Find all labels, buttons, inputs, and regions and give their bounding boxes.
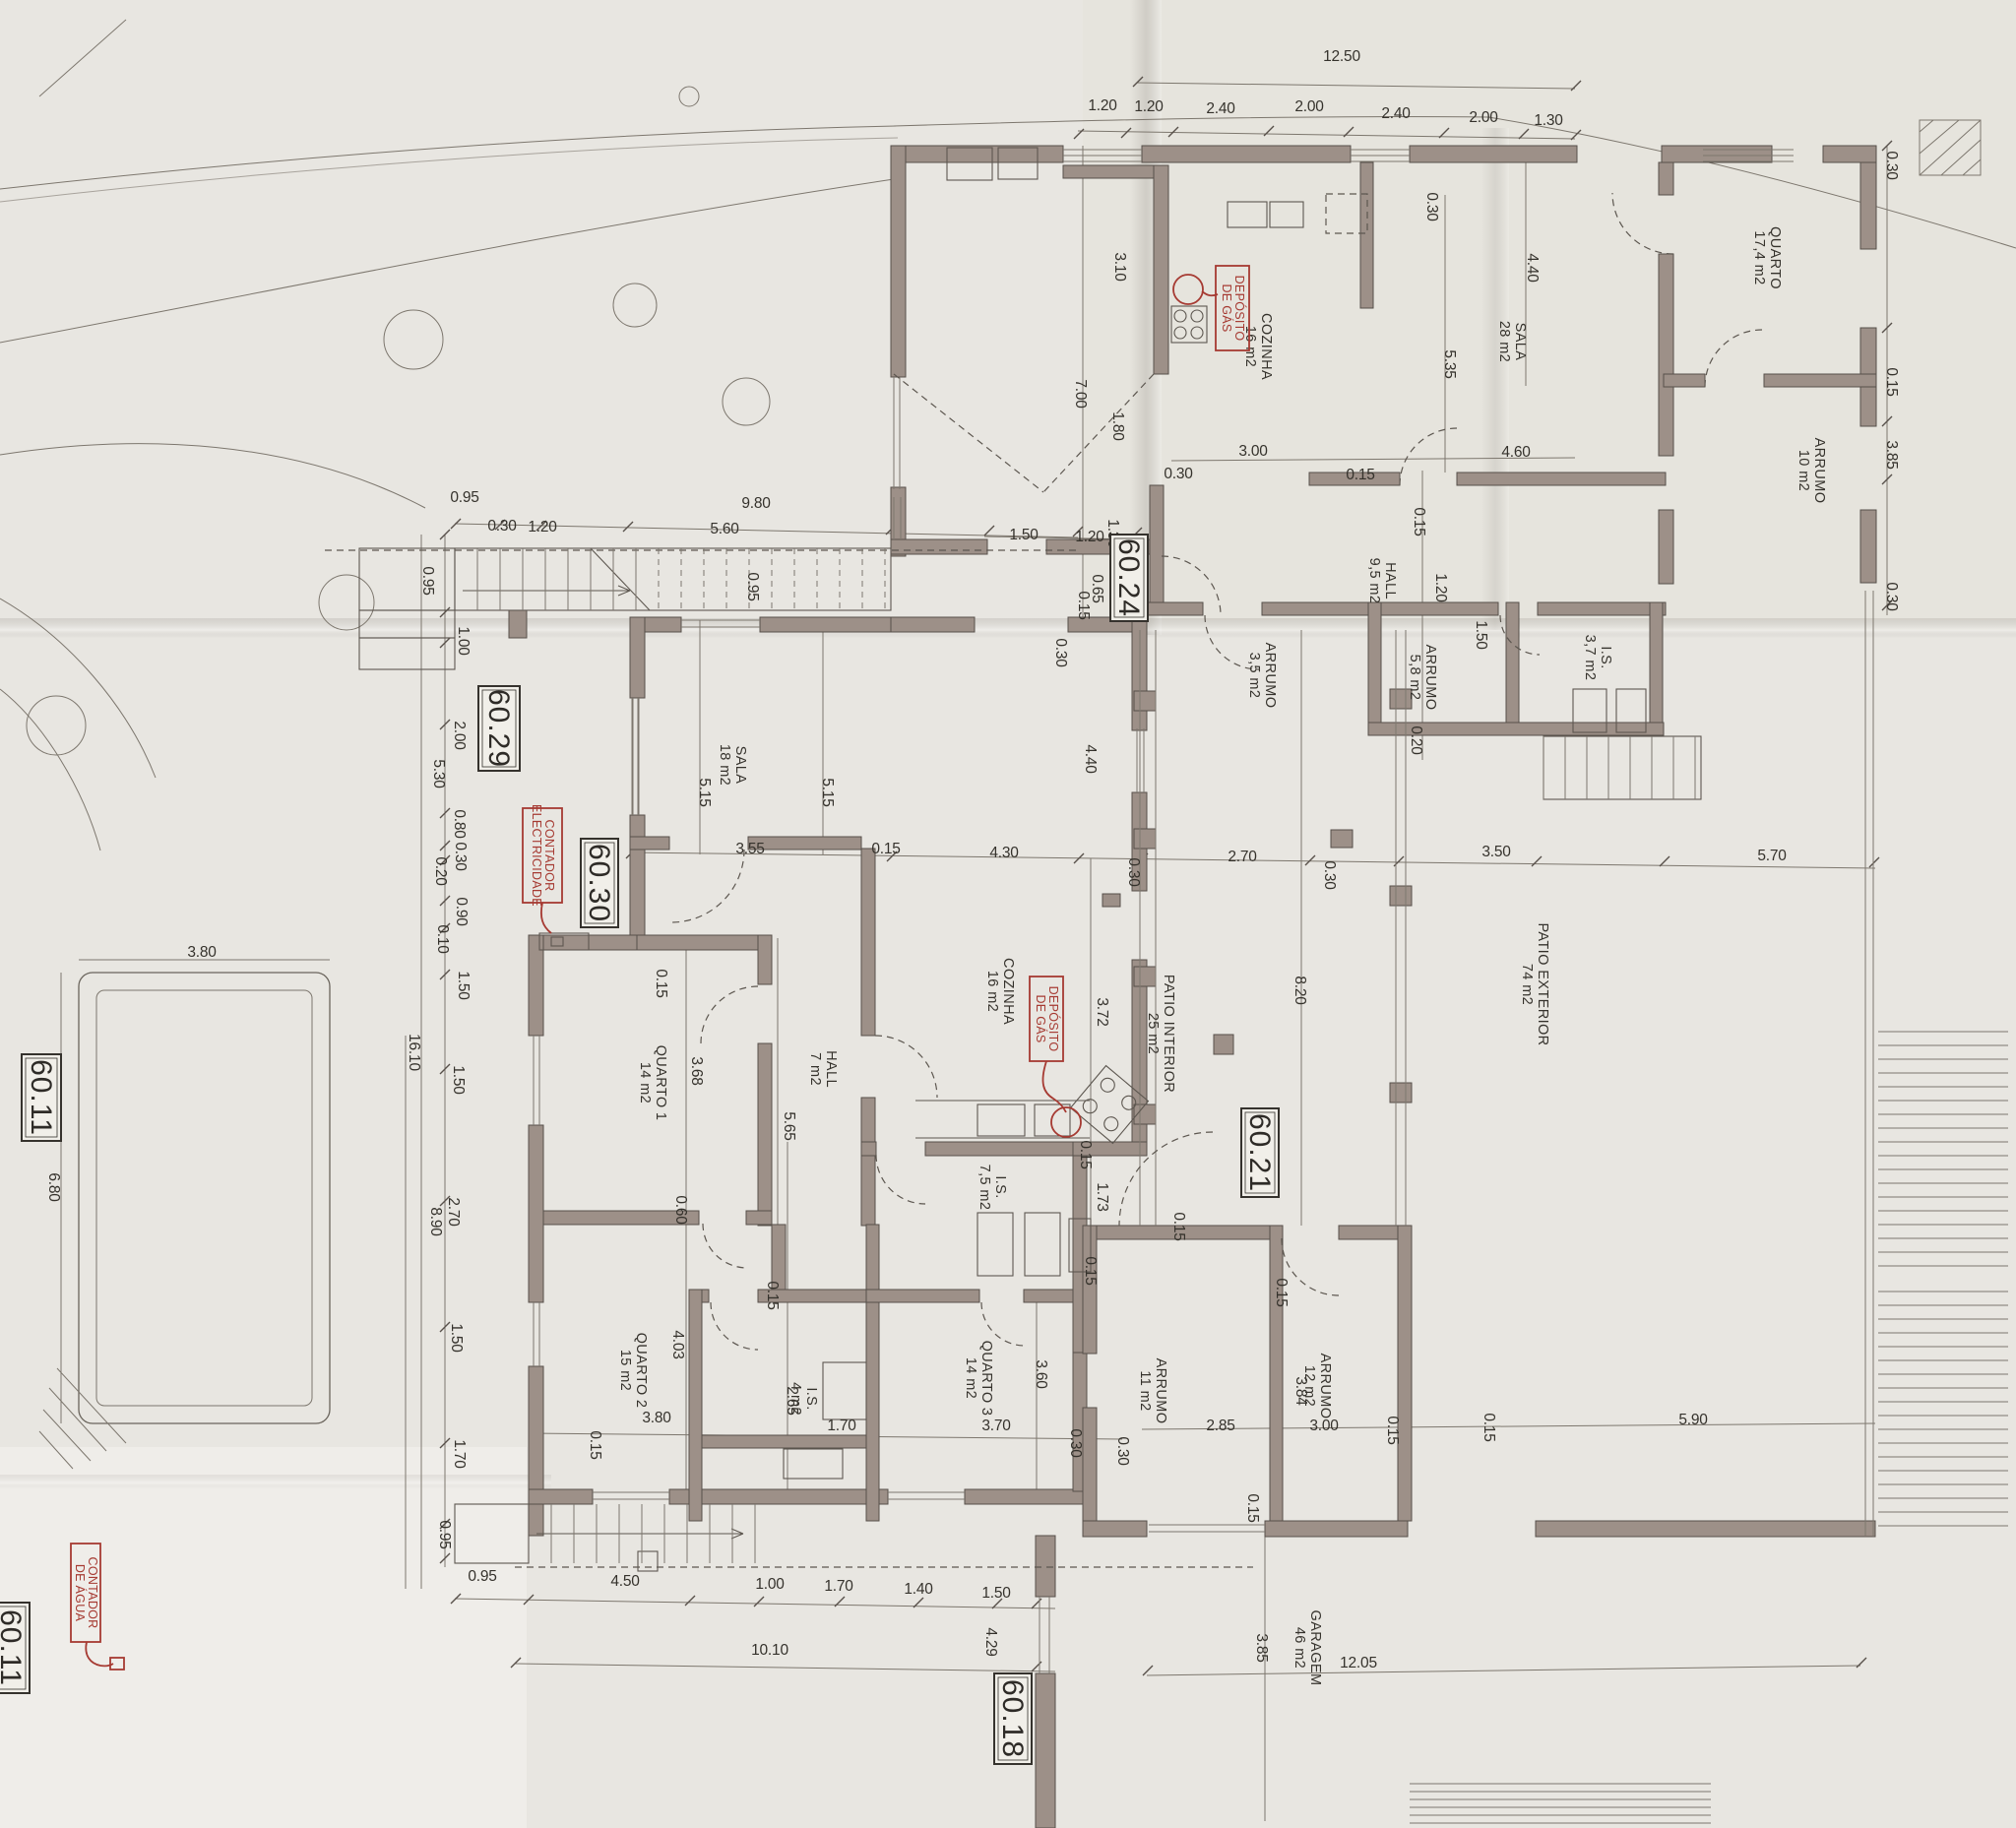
dimension-label: 8.20 — [1291, 976, 1308, 1005]
dimension-label: 1.70 — [824, 1578, 853, 1595]
dimension-label: 8.90 — [427, 1207, 444, 1236]
dimension-label: 0.30 — [1125, 857, 1142, 887]
ref-marker: 60.29 — [478, 686, 520, 771]
dimension-label: 0.15 — [587, 1430, 603, 1459]
floor-plan-drawing: COZINHA16 m2SALA28 m2QUARTO17,4 m2ARRUMO… — [0, 0, 2016, 1828]
dimension-label: 3.00 — [1309, 1418, 1339, 1434]
dimension-label: 3.00 — [1238, 443, 1268, 460]
dimension-label: 0.30 — [1052, 638, 1069, 667]
room-label: SALA18 m2 — [717, 744, 748, 786]
dimension-label: 12.05 — [1340, 1655, 1377, 1671]
dimension-label: 5.15 — [819, 778, 836, 806]
dimension-label: 5.90 — [1678, 1412, 1708, 1428]
dimension-label: 16.10 — [406, 1034, 422, 1071]
ref-marker-label: 60.24 — [1112, 538, 1145, 617]
dimension-label: 0.15 — [1480, 1413, 1497, 1441]
red-annotation-label: DEPÓSITODE GÁS — [1034, 986, 1061, 1052]
ref-marker-label: 60.21 — [1243, 1113, 1276, 1192]
dimension-label: 0.30 — [1164, 466, 1193, 482]
dimension-label: 0.15 — [871, 841, 900, 857]
dimension-label: 0.95 — [450, 489, 478, 506]
dimension-label: 2.85 — [1206, 1418, 1234, 1434]
ref-marker-label: 60.30 — [583, 844, 615, 922]
ref-marker-label: 60.18 — [996, 1679, 1029, 1758]
dimension-label: 0.60 — [672, 1195, 689, 1225]
dimension-label: 2.70 — [445, 1197, 462, 1227]
dimension-label: 3.84 — [1292, 1376, 1309, 1406]
dimension-label: 0.15 — [1077, 1140, 1094, 1168]
dimension-label: 0.15 — [1384, 1416, 1401, 1444]
dimension-label: 0.20 — [432, 856, 449, 886]
dimension-label: 0.30 — [452, 842, 469, 871]
dimension-label: 3.10 — [1111, 252, 1128, 282]
dimension-label: 3.68 — [688, 1056, 705, 1085]
dimension-label: 1.50 — [448, 1323, 465, 1353]
dimension-label: 0.95 — [419, 566, 436, 595]
ref-marker: 60.24 — [1110, 535, 1148, 621]
dimension-label: 1.30 — [1534, 112, 1563, 129]
dimension-label: 1.20 — [1088, 97, 1117, 114]
dimension-label: 9.80 — [741, 495, 771, 512]
dimension-label: 0.30 — [1883, 151, 1900, 180]
dimension-label: 3.55 — [735, 841, 764, 857]
dimension-label: 4.50 — [610, 1573, 640, 1590]
dimension-label: 0.15 — [1411, 507, 1427, 536]
dimension-label: 3.60 — [1033, 1359, 1049, 1389]
dimension-label: 0.30 — [487, 518, 517, 535]
dimension-label: 1.20 — [528, 519, 557, 536]
dimension-label: 2.65 — [784, 1386, 800, 1415]
dimension-label: 1.20 — [1134, 98, 1164, 115]
paper-crease-horizontal — [0, 618, 2016, 638]
dimension-label: 3.72 — [1094, 997, 1110, 1026]
dimension-label: 0.15 — [1170, 1212, 1187, 1240]
ref-marker: 60.30 — [581, 839, 618, 927]
room-label: HALL9,5 m2 — [1366, 558, 1398, 604]
dimension-label: 2.00 — [1469, 109, 1498, 126]
dimension-label: 5.65 — [781, 1111, 797, 1140]
room-label: SALA28 m2 — [1496, 321, 1528, 362]
room-label: QUARTO17,4 m2 — [1751, 226, 1783, 289]
dimension-label: 0.95 — [468, 1568, 496, 1585]
dimension-label: 0.80 — [451, 809, 468, 839]
scanned-floor-plan-sheet: COZINHA16 m2SALA28 m2QUARTO17,4 m2ARRUMO… — [0, 0, 2016, 1828]
dimension-label: 0.30 — [1114, 1436, 1131, 1466]
dimension-label: 7.00 — [1072, 379, 1089, 409]
dimension-label: 0.30 — [1321, 860, 1338, 890]
paper-crease-vertical-2 — [1481, 128, 1509, 630]
dimension-label: 0.30 — [1423, 192, 1440, 221]
dimension-label: 5.60 — [710, 521, 739, 537]
dimension-label: 12.50 — [1323, 48, 1360, 65]
ref-marker-label: 60.11 — [25, 1059, 57, 1136]
dimension-label: 4.40 — [1524, 253, 1541, 283]
dimension-label: 5.70 — [1757, 848, 1787, 864]
dimension-label: 2.40 — [1381, 105, 1411, 122]
ref-marker-label: 60.29 — [482, 689, 515, 768]
dimension-label: 1.50 — [981, 1585, 1011, 1602]
dimension-label: 1.20 — [1432, 573, 1449, 602]
dimension-label: 1.73 — [1094, 1182, 1110, 1211]
ref-marker: 60.21 — [1241, 1108, 1279, 1197]
dimension-label: 1.50 — [450, 1065, 467, 1095]
dimension-label: 0.10 — [434, 924, 451, 954]
dimension-label: 0.95 — [744, 572, 761, 600]
red-annotation-label: DEPÓSITODE GÁS — [1220, 276, 1247, 342]
dimension-label: 5.30 — [430, 759, 447, 788]
dimension-label: 3.80 — [187, 944, 217, 961]
dimension-label: 3.50 — [1481, 844, 1511, 860]
dimension-label: 5.35 — [1441, 349, 1458, 378]
dimension-label: 0.30 — [1067, 1428, 1084, 1458]
dimension-label: 3.85 — [1253, 1633, 1270, 1662]
red-annotation-label: CONTADORELECTRICIDADE — [530, 804, 556, 907]
dimension-label: 1.20 — [1075, 529, 1104, 545]
dimension-label: 10.10 — [751, 1642, 788, 1659]
dimension-label: 1.50 — [455, 971, 472, 1000]
dimension-label: 0.15 — [764, 1281, 781, 1309]
dimension-label: 2.40 — [1206, 100, 1235, 117]
room-label: HALL7 m2 — [807, 1050, 839, 1088]
dimension-label: 0.20 — [1408, 725, 1424, 755]
dimension-label: 4.40 — [1082, 744, 1099, 774]
paper-crease-horizontal-2 — [0, 1475, 551, 1488]
dimension-label: 0.15 — [1883, 367, 1900, 396]
ref-marker-label: 60.11 — [0, 1609, 27, 1686]
dimension-label: 3.85 — [1883, 440, 1900, 469]
dimension-label: 0.90 — [453, 897, 470, 926]
dimension-label: 1.50 — [1009, 527, 1039, 543]
dimension-label: 1.80 — [1109, 411, 1126, 441]
ref-marker: 60.18 — [994, 1673, 1032, 1764]
dimension-label: 4.30 — [989, 845, 1019, 861]
dimension-label: 0.15 — [1075, 591, 1092, 619]
dimension-label: 3.80 — [642, 1410, 671, 1426]
ref-marker: 60.11 — [0, 1603, 30, 1693]
dimension-label: 0.15 — [1346, 467, 1374, 483]
dimension-label: 1.00 — [755, 1576, 785, 1593]
dimension-label: 0.95 — [436, 1520, 453, 1548]
ref-marker: 60.11 — [22, 1054, 61, 1141]
red-annotation-label: CONTADORDE ÁGUA — [73, 1557, 99, 1629]
dimension-label: 5.15 — [696, 778, 713, 806]
dimension-label: 3.70 — [981, 1418, 1011, 1434]
dimension-label: 0.15 — [653, 969, 669, 997]
dimension-label: 2.70 — [1228, 849, 1257, 865]
dimension-label: 1.40 — [904, 1581, 933, 1598]
dimension-label: 1.70 — [827, 1418, 856, 1434]
dimension-label: 6.80 — [45, 1172, 62, 1202]
dimension-label: 1.70 — [451, 1439, 468, 1469]
dimension-label: 0.15 — [1273, 1278, 1290, 1306]
dimension-label: 2.00 — [1294, 98, 1324, 115]
dimension-label: 0.15 — [1082, 1256, 1099, 1285]
dimension-label: 1.00 — [455, 626, 472, 656]
dimension-label: 2.00 — [451, 721, 468, 750]
dimension-label: 4.03 — [669, 1330, 686, 1358]
dimension-label: 4.29 — [982, 1627, 999, 1656]
dimension-label: 1.50 — [1473, 620, 1489, 650]
paper-shade-bottomleft — [0, 1447, 527, 1828]
dimension-label: 0.15 — [1244, 1493, 1261, 1522]
dimension-label: 0.30 — [1883, 582, 1900, 611]
dimension-label: 4.60 — [1501, 444, 1531, 461]
